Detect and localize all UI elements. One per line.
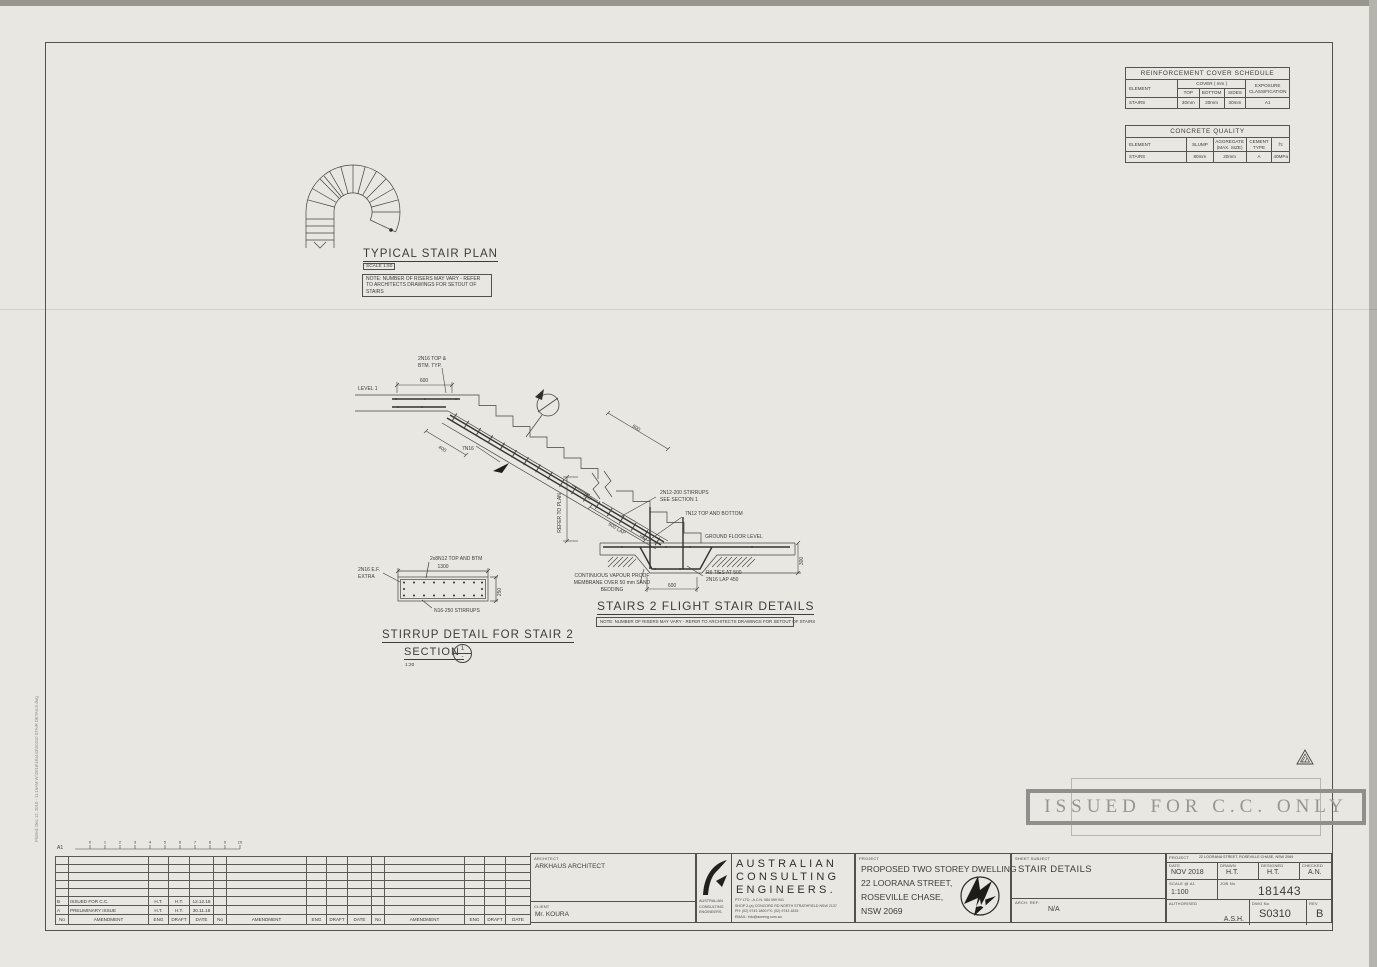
dim-250-stirrup: 250 bbox=[497, 588, 503, 597]
job-label: JOB No bbox=[1220, 881, 1235, 886]
rev-value: B bbox=[1316, 908, 1323, 920]
tick-9: 9 bbox=[224, 840, 227, 845]
quality-col-slump: SLUMP bbox=[1187, 138, 1214, 152]
label-level1: LEVEL 1 bbox=[358, 386, 378, 392]
tick-5: 5 bbox=[164, 840, 167, 845]
authorised-row: AUTHORISED A.S.H. DWG No S0310 REV B bbox=[1167, 899, 1331, 925]
label-top-reo-2: BTM. TYP. bbox=[418, 363, 442, 369]
stirrup-labels: 2x8N12 TOP AND BTM 2N16 E.F. EXTRA 1300 … bbox=[358, 556, 503, 614]
ace-side-1: AUSTRALIAN bbox=[699, 899, 724, 905]
revision-triangle-icon bbox=[1296, 749, 1314, 765]
revision-table: B ISSUED FOR C.C. H.T. H.T. 12.12.18 A P… bbox=[55, 856, 531, 925]
tick-8: 8 bbox=[209, 840, 212, 845]
checked-label: CHECKED bbox=[1302, 863, 1323, 868]
quality-element: STAIRS bbox=[1126, 152, 1187, 163]
section-scale: 1:20 bbox=[405, 663, 414, 668]
tick-6: 6 bbox=[179, 840, 182, 845]
stair-plan-end-dot bbox=[389, 228, 393, 232]
quality-col-fc: f'c bbox=[1272, 138, 1290, 152]
client-label: CLIENT bbox=[534, 904, 549, 909]
label-top-btm: 2x8N12 TOP AND BTM bbox=[430, 556, 482, 562]
dim-1300: 1300 bbox=[437, 564, 448, 570]
label-bottom-reo: 7N12 TOP AND BOTTOM bbox=[685, 511, 743, 517]
dim-300: 300 bbox=[799, 557, 805, 566]
tick-7: 7 bbox=[194, 840, 197, 845]
cover-schedule-title: REINFORCEMENT COVER SCHEDULE bbox=[1126, 68, 1290, 80]
north-arrow-icon bbox=[958, 873, 1002, 919]
label-vapour-2: MEMBRANE OVER 50 mm SAND bbox=[574, 580, 651, 586]
cover-col-cover: COVER ( mm ) bbox=[1178, 80, 1246, 89]
typical-stair-plan-drawing bbox=[300, 160, 440, 252]
flight-detail-title: STAIRS 2 FLIGHT STAIR DETAILS bbox=[597, 599, 814, 615]
rebar-dots bbox=[395, 398, 753, 570]
engineers-box: AUSTRALIAN CONSULTING ENGINEERS. AUSTRAL… bbox=[696, 853, 855, 923]
rev-date: 12.12.18 bbox=[190, 897, 214, 906]
section-bubble-sheet: - bbox=[454, 654, 471, 661]
job-cell: JOB No 181443 bbox=[1218, 880, 1331, 900]
scale-label: SCALE @ A1 bbox=[1169, 881, 1195, 886]
architect-value: ARKHAUS ARCHITECT bbox=[535, 863, 605, 870]
dim-upper-600: 600 bbox=[631, 424, 641, 434]
scale-bar-ticks bbox=[90, 845, 240, 849]
section-bubble-number: 1 bbox=[454, 645, 471, 654]
cover-col-element: ELEMENT bbox=[1126, 80, 1178, 98]
rev-eng: H.T. bbox=[149, 897, 169, 906]
quality-col-aggregate: AGGREGATE (MAX. SIZE) bbox=[1213, 138, 1246, 152]
label-7n16: 7N16 bbox=[462, 446, 474, 452]
authorised-value: A.S.H. bbox=[1224, 916, 1244, 923]
rev-label: REV bbox=[1309, 901, 1318, 906]
ground-hatch bbox=[608, 557, 755, 567]
scale-value: 1:100 bbox=[1171, 889, 1189, 896]
tick-4: 4 bbox=[149, 840, 152, 845]
people-row: DATE NOV 2018 DRAWN H.T. DESIGNED H.T. C… bbox=[1167, 862, 1331, 879]
arch-ref-label: ARCH. REF: bbox=[1015, 900, 1040, 905]
sheet-subject-value: STAIR DETAILS bbox=[1018, 864, 1092, 875]
rev-amendment: ISSUED FOR C.C. bbox=[69, 897, 149, 906]
direction-arrow bbox=[493, 463, 509, 473]
tick-1: 1 bbox=[104, 840, 107, 845]
label-ties-1: R6 TIES AT 500 bbox=[706, 570, 742, 576]
rev-draft: H.T. bbox=[169, 906, 190, 915]
designed-cell: DESIGNED H.T. bbox=[1259, 862, 1300, 879]
ace-side-words: AUSTRALIAN CONSULTING ENGINEERS. bbox=[699, 899, 724, 916]
drawn-value: H.T. bbox=[1226, 869, 1238, 876]
quality-col-element: ELEMENT bbox=[1126, 138, 1187, 152]
revision-row-a: A PRELIMINARY ISSUE H.T. H.T. 30.11.18 bbox=[56, 906, 531, 915]
ace-name-3: ENGINEERS. bbox=[736, 884, 839, 897]
scale-bar-label: A1 bbox=[57, 845, 63, 851]
ace-divider bbox=[731, 854, 732, 922]
ace-email: EMAIL: info@aceeng.com.au bbox=[735, 915, 837, 921]
flight-geometry bbox=[355, 395, 801, 573]
flight-reinforcement bbox=[392, 399, 790, 569]
dim-top-600: 600 bbox=[420, 378, 429, 384]
quality-title: CONCRETE QUALITY bbox=[1126, 126, 1290, 138]
quality-aggregate: 20mm bbox=[1213, 152, 1246, 163]
quality-fc: 40MPa bbox=[1272, 152, 1290, 163]
architect-client-divider bbox=[531, 901, 695, 902]
rev-eng: H.T. bbox=[149, 906, 169, 915]
dwg-label: DWG No bbox=[1252, 901, 1269, 906]
project-label: PROJECT bbox=[859, 856, 879, 861]
cover-col-sides: SIDES bbox=[1224, 89, 1246, 98]
designed-label: DESIGNED bbox=[1261, 863, 1284, 868]
issued-stamp: ISSUED FOR C.C. ONLY bbox=[1071, 778, 1321, 836]
rev-no: A bbox=[56, 906, 69, 915]
drawing-sheet: Plotted: Dec 12, 2018 - 11:15AM W:\2018\… bbox=[0, 0, 1377, 967]
tick-10: 10 bbox=[238, 840, 243, 845]
rev-amendment: PRELIMINARY ISSUE bbox=[69, 906, 149, 915]
stair-plan-note: NOTE: NUMBER OF RISERS MAY VARY - REFER … bbox=[362, 274, 492, 297]
cover-row-stairs: STAIRS 30mm 30mm 30mm A1 bbox=[1126, 98, 1290, 109]
scale-job-row: SCALE @ A1 1:100 JOB No 181443 bbox=[1167, 879, 1331, 900]
rev-h-draft: DRAFT bbox=[169, 915, 190, 925]
scan-edge-right bbox=[1369, 0, 1377, 967]
ace-name: AUSTRALIAN CONSULTING ENGINEERS. bbox=[736, 858, 839, 897]
rev-h-no: No bbox=[56, 915, 69, 925]
revision-row-empty bbox=[56, 881, 531, 889]
client-value: Mr. KOURA bbox=[535, 911, 569, 918]
scale-bar-numbers: 0 1 2 3 4 5 6 7 8 9 10 bbox=[89, 840, 243, 845]
cover-element: STAIRS bbox=[1126, 98, 1178, 109]
revision-row-empty bbox=[56, 857, 531, 865]
quality-row-stairs: STAIRS 80mm 20mm A 40MPa bbox=[1126, 152, 1290, 163]
cover-col-top: TOP bbox=[1178, 89, 1200, 98]
rev-draft: H.T. bbox=[169, 897, 190, 906]
project-ref-value: 22 LOORANA STREET, ROSEVILLE CHASE, NSW … bbox=[1199, 855, 1293, 859]
project-ref-label: PROJECT bbox=[1169, 855, 1189, 860]
quality-cement: A bbox=[1246, 152, 1272, 163]
tick-3: 3 bbox=[134, 840, 137, 845]
label-refer-to-plan: REFER TO PLAN bbox=[557, 493, 563, 533]
checked-value: A.N. bbox=[1308, 869, 1322, 876]
stair-plan-geometry bbox=[306, 165, 400, 248]
scan-edge-top bbox=[0, 0, 1377, 6]
cover-col-exposure: EXPOSURE CLASSIFICATION bbox=[1246, 80, 1290, 98]
checked-cell: CHECKED A.N. bbox=[1300, 862, 1331, 879]
cover-sides: 30mm bbox=[1224, 98, 1246, 109]
arch-ref-value: N/A bbox=[1048, 906, 1060, 913]
issued-stamp-text: ISSUED FOR C.C. ONLY bbox=[1026, 789, 1365, 825]
revision-row-empty bbox=[56, 873, 531, 881]
reinforcement-cover-schedule: REINFORCEMENT COVER SCHEDULE ELEMENT COV… bbox=[1125, 67, 1290, 109]
plot-stamp: Plotted: Dec 12, 2018 - 11:15AM W:\2018\… bbox=[34, 542, 39, 842]
label-ef-2: EXTRA bbox=[358, 574, 375, 580]
job-value: 181443 bbox=[1258, 884, 1301, 898]
stair-plan-title: TYPICAL STAIR PLAN bbox=[363, 248, 498, 262]
architect-label: ARCHITECT bbox=[534, 856, 559, 861]
dim-base-600: 600 bbox=[668, 583, 677, 589]
dwg-value: S0310 bbox=[1259, 908, 1291, 920]
sheet-subject-box: SHEET SUBJECT STAIR DETAILS ARCH. REF: N… bbox=[1011, 853, 1166, 923]
designed-value: H.T. bbox=[1267, 869, 1279, 876]
scale-bar: A1 0 1 2 3 4 5 6 7 8 9 10 bbox=[55, 839, 265, 853]
label-top-reo-1: 2N16 TOP & bbox=[418, 356, 447, 362]
rev-h-amendment: AMENDMENT bbox=[69, 915, 149, 925]
sheet-subject-label: SHEET SUBJECT bbox=[1015, 856, 1050, 861]
ace-fineprint: PTY LTD - A.C.N. 084 059 941 SHOP 2-(a) … bbox=[735, 898, 837, 920]
stair-plan-scale: SCALE 1:50 bbox=[363, 263, 395, 270]
label-ties-2: 2N16 LAP 450 bbox=[706, 577, 739, 583]
label-vapour-3: BEDDING bbox=[601, 587, 624, 593]
label-gfl: GROUND FLOOR LEVEL bbox=[705, 534, 763, 540]
date-cell: DATE NOV 2018 bbox=[1167, 862, 1218, 879]
label-stirrups: N16-250 STIRRUPS bbox=[434, 608, 481, 614]
rev-cell: REV B bbox=[1307, 900, 1331, 925]
authorised-cell: AUTHORISED A.S.H. bbox=[1167, 900, 1250, 925]
rev-h-date: DATE bbox=[190, 915, 214, 925]
quality-col-cement: CEMENT TYPE bbox=[1246, 138, 1272, 152]
revision-row-b: B ISSUED FOR C.C. H.T. H.T. 12.12.18 bbox=[56, 897, 531, 906]
label-stirrups-2: SEE SECTION 1 bbox=[660, 497, 698, 503]
cover-exposure: A1 bbox=[1246, 98, 1290, 109]
architect-client-box: ARCHITECT ARKHAUS ARCHITECT CLIENT Mr. K… bbox=[530, 853, 696, 923]
section-cut-marker bbox=[526, 389, 559, 437]
project-box: PROJECT PROPOSED TWO STOREY DWELLING 22 … bbox=[855, 853, 1011, 923]
rev-h-eng: ENG bbox=[149, 915, 169, 925]
drawing-info-box: PROJECT 22 LOORANA STREET, ROSEVILLE CHA… bbox=[1166, 853, 1332, 923]
authorised-label: AUTHORISED bbox=[1169, 901, 1197, 906]
cover-top: 30mm bbox=[1178, 98, 1200, 109]
drawn-label: DRAWN bbox=[1220, 863, 1236, 868]
scale-cell: SCALE @ A1 1:100 bbox=[1167, 880, 1218, 900]
revision-row-empty bbox=[56, 865, 531, 873]
ace-logo-icon bbox=[700, 857, 730, 897]
cover-col-bottom: BOTTOM bbox=[1199, 89, 1224, 98]
label-stirrups-1: 2N12-200 STIRRUPS bbox=[660, 490, 709, 496]
rev-no: B bbox=[56, 897, 69, 906]
dim-400: 400 bbox=[437, 445, 447, 455]
revision-row-empty bbox=[56, 889, 531, 897]
stirrup-detail-title: STIRRUP DETAIL FOR STAIR 2 bbox=[382, 629, 574, 643]
ace-side-3: ENGINEERS. bbox=[699, 910, 724, 916]
tick-2: 2 bbox=[119, 840, 122, 845]
tick-0: 0 bbox=[89, 840, 92, 845]
date-label: DATE bbox=[1169, 863, 1180, 868]
dwg-cell: DWG No S0310 bbox=[1250, 900, 1307, 925]
label-vapour-1: CONTINUOUS VAPOUR PROOF bbox=[575, 573, 650, 579]
ace-name-2: CONSULTING bbox=[736, 871, 839, 884]
section-bubble: 1 - bbox=[453, 644, 472, 663]
concrete-quality-schedule: CONCRETE QUALITY ELEMENT SLUMP AGGREGATE… bbox=[1125, 125, 1290, 163]
quality-slump: 80mm bbox=[1187, 152, 1214, 163]
stirrup-detail-drawing: 2x8N12 TOP AND BTM 2N16 E.F. EXTRA 1300 … bbox=[350, 548, 510, 616]
rev-date: 30.11.18 bbox=[190, 906, 214, 915]
sheet-subject-divider bbox=[1012, 898, 1165, 899]
flight-detail-note: NOTE: NUMBER OF RISERS MAY VARY - REFER … bbox=[596, 617, 794, 627]
stirrup-rebar-dots bbox=[403, 582, 483, 597]
ace-name-1: AUSTRALIAN bbox=[736, 858, 839, 871]
date-value: NOV 2018 bbox=[1171, 869, 1204, 876]
drawn-cell: DRAWN H.T. bbox=[1218, 862, 1259, 879]
label-ef-1: 2N16 E.F. bbox=[358, 567, 380, 573]
revision-header-row: No AMENDMENT ENG DRAFT DATE No AMENDMENT… bbox=[56, 915, 531, 925]
cover-bottom: 30mm bbox=[1199, 98, 1224, 109]
